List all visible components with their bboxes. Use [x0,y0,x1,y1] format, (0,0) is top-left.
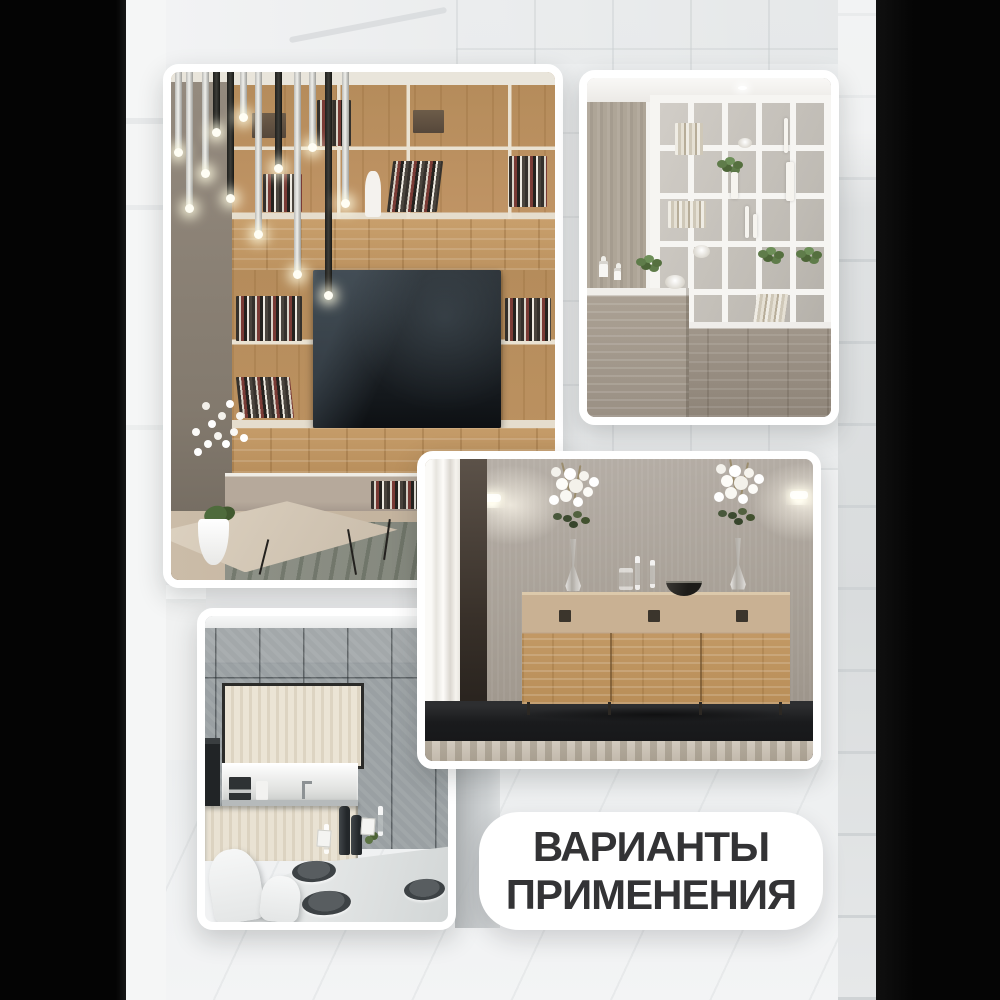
books [668,201,706,228]
pendant-light [255,72,262,235]
backdrop-right-shelf-strip [838,0,876,1000]
lotus-decor [665,275,685,289]
caption-line1: ВАРИАНТЫ [533,823,769,871]
drawer-knob [736,610,748,622]
books [236,296,301,342]
candle [745,206,749,238]
books [387,161,443,212]
chair [259,874,302,922]
pendant-light [342,72,349,204]
decor-vase [693,245,710,258]
candle [753,214,757,238]
champagne-glass [635,556,640,590]
books [505,298,551,341]
kitchen-niche [222,683,364,769]
place-card [316,830,331,848]
door-seam [610,633,612,701]
rug [425,741,813,761]
plant [758,250,768,258]
backdrop-left-shelf-strip [126,0,166,1000]
champagne-glass [650,560,655,588]
side-chest [587,288,689,417]
pendant-light [325,72,332,296]
wine-glass [378,806,383,836]
books [236,377,294,418]
leg [608,702,611,715]
lantern [599,261,608,277]
pendant-light [202,72,209,174]
leg [699,702,702,715]
plant [636,258,646,266]
pendant-light [294,72,301,275]
pendant-light [186,72,193,209]
candle [784,118,788,152]
pepper-grinder [339,806,350,855]
coffee-machine [229,777,251,800]
vase [731,172,738,199]
photo-white-shelf-divider [579,70,839,425]
caption-line2: ПРИМЕНЕНИЯ [506,871,796,919]
cake-stand [619,568,633,590]
pendant-light [309,72,316,148]
kettle [256,781,268,799]
collage-page: ВАРИАНТЫ ПРИМЕНЕНИЯ [0,0,1000,1000]
books [675,123,703,155]
faucet [302,781,305,799]
photo-oak-sideboard [417,451,821,769]
decor-box [413,110,444,133]
backdrop-dark-column-right [876,0,1000,1000]
leg [779,702,782,715]
plant [717,160,727,168]
pendant-light [275,72,282,169]
sideboard [522,592,790,704]
caption-badge: ВАРИАНТЫ ПРИМЕНЕНИЯ [479,812,823,930]
plant [796,250,806,258]
door-seam [700,633,702,701]
pendant-light [227,72,234,199]
wall-sconce [786,489,812,505]
pendant-light [175,72,182,153]
backdrop-dark-column-left [0,0,126,1000]
pepper-grinder [351,815,362,855]
drawer-knob [648,610,660,622]
orchid-flowers [194,448,202,456]
place-card [360,817,375,835]
ceiling [205,616,448,628]
decor-bowl [738,138,752,148]
lantern [614,268,621,280]
drawer-knob [559,610,571,622]
wood-plank-band [232,219,555,270]
white-vase [365,171,381,217]
side-shelf-right [501,270,555,427]
pendant-light [240,72,247,118]
candle [786,162,794,201]
leg [527,702,530,715]
books [509,156,547,207]
floor-shadow [518,707,793,722]
pendant-light [213,72,220,133]
tv-screen [313,270,501,427]
